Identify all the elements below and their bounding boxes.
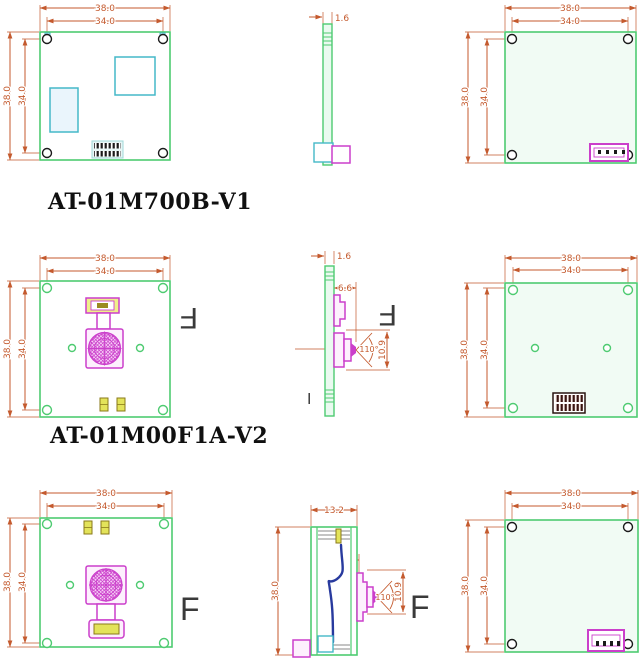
row2-back-view: 38.0 34.0 38.0 34.0 <box>460 254 637 417</box>
index-tick: I <box>307 390 311 408</box>
row3-back-view: 38.0 34.0 38.0 34.0 <box>461 489 638 652</box>
dim-board-height: 38.0 <box>461 87 471 107</box>
lens-glass-side <box>351 343 356 357</box>
dim-hole-span-v: 34.0 <box>18 572 28 592</box>
dim-fov-angle: 110° <box>359 345 378 354</box>
fpc-ribbon <box>97 604 115 620</box>
dim-hole-span: 34.0 <box>560 17 580 27</box>
dim-case-height: 38.0 <box>271 581 281 601</box>
connector-side-block <box>293 640 310 657</box>
dim-board-width: 38.0 <box>96 489 116 499</box>
mounting-hole <box>43 284 52 293</box>
mounting-hole <box>508 640 517 649</box>
dim-hole-span: 34.0 <box>95 267 115 277</box>
dim-case-width: 13.2 <box>324 506 344 516</box>
extension-lines <box>323 12 332 24</box>
dim-board-width: 38.0 <box>561 489 581 499</box>
mounting-hole <box>624 286 633 295</box>
output-connector-4pin <box>588 630 624 651</box>
mounting-hole <box>624 404 633 413</box>
lens-mount-hole <box>532 345 539 352</box>
mounting-hole <box>159 35 168 44</box>
dim-hole-span: 34.0 <box>561 502 581 512</box>
row2-side-view: 1.6 6.6 10.9 110° I F <box>295 251 397 416</box>
dim-board-width: 38.0 <box>561 254 581 264</box>
lens-mount-hole <box>137 345 144 352</box>
dim-hole-span-v: 34.0 <box>480 340 490 360</box>
lens-barrel-side <box>344 339 351 361</box>
dim-board-height: 38.0 <box>3 86 13 106</box>
lens-mount-hole <box>604 345 611 352</box>
mounting-hole <box>43 639 52 648</box>
dim-board-width: 38.0 <box>560 4 580 14</box>
mounting-hole <box>509 404 518 413</box>
dim-module-height: 10.9 <box>378 340 388 360</box>
model-label-2: AT-01M00F1A-V2 <box>49 423 268 449</box>
row3-side-view: 13.2 38.0 6.6 10.9 110° F <box>271 505 430 657</box>
mounting-hole <box>160 520 169 529</box>
output-connector-4pin <box>590 144 628 161</box>
dim-board-height: 38.0 <box>3 339 13 359</box>
orientation-marker-f: F <box>180 591 200 627</box>
orientation-marker-inverted-f: F <box>180 301 198 334</box>
dim-pcb-thickness: 1.6 <box>335 14 350 24</box>
dim-hole-span-v: 34.0 <box>480 576 490 596</box>
dim-fov-angle: 110° <box>375 593 394 602</box>
ic-chip-large <box>115 57 155 95</box>
dim-hole-span-v: 34.0 <box>18 339 28 359</box>
camera-bracket-side <box>357 573 367 621</box>
mounting-hole <box>159 406 168 415</box>
orientation-marker-inverted-f: F <box>379 298 397 331</box>
camera-module <box>86 566 126 638</box>
lens-mount-hole <box>137 582 144 589</box>
row2-front-view: 38.0 34.0 38.0 34.0 F <box>3 254 198 417</box>
camera-body-side <box>334 333 344 367</box>
dim-board-height: 38.0 <box>460 340 470 360</box>
row1-back-view: 38.0 34.0 38.0 34.0 <box>461 4 636 163</box>
model-label-1: AT-01M700B-V1 <box>47 189 252 215</box>
lens-mount-hole <box>69 345 76 352</box>
mounting-hole <box>508 151 517 160</box>
row3-front-view: 38.0 34.0 38.0 34.0 10.8 10.8 F <box>3 489 200 648</box>
fpc-ribbon <box>97 313 110 329</box>
mounting-hole <box>159 284 168 293</box>
mounting-hole <box>43 149 52 158</box>
mounting-hole <box>508 523 517 532</box>
internal-part <box>336 529 341 543</box>
dim-module-height: 10.9 <box>394 582 404 602</box>
mounting-hole <box>160 639 169 648</box>
mounting-hole <box>624 35 633 44</box>
mounting-hole <box>43 406 52 415</box>
board-connector-footprint <box>553 393 585 413</box>
mounting-hole <box>43 520 52 529</box>
fpc-contacts <box>97 303 108 308</box>
dim-hole-span: 34.0 <box>561 266 581 276</box>
dim-board-width: 38.0 <box>95 254 115 264</box>
mounting-hole <box>508 35 517 44</box>
mounting-hole <box>159 149 168 158</box>
mounting-hole <box>509 286 518 295</box>
camera-module <box>86 298 123 368</box>
board-connector-footprint <box>92 141 123 158</box>
dim-board-height: 38.0 <box>461 576 471 596</box>
dim-hole-span: 34.0 <box>95 17 115 27</box>
row1-front-view: 38.0 34.0 38.0 34.0 <box>3 4 170 160</box>
connector-side-block <box>332 146 350 163</box>
dim-pcb-thickness: 1.6 <box>337 252 352 262</box>
mounting-hole <box>43 35 52 44</box>
dim-hole-span: 34.0 <box>96 502 116 512</box>
dim-lens-height: 6.6 <box>338 284 353 294</box>
lens-mount-hole <box>67 582 74 589</box>
orientation-marker-f: F <box>410 589 430 625</box>
component-side-block <box>318 636 333 652</box>
dim-board-width: 38.0 <box>95 4 115 14</box>
fpc-connector-side <box>334 295 345 326</box>
ic-chip-small <box>50 88 78 132</box>
row1-side-view: 1.6 <box>309 12 350 165</box>
lens-barrel-side <box>367 587 373 607</box>
dim-hole-span-v: 34.0 <box>480 87 490 107</box>
dim-hole-span-v: 34.0 <box>18 86 28 106</box>
engineering-drawing-sheet: 38.0 34.0 38.0 34.0 AT-01M700B-V1 1.6 <box>0 0 640 662</box>
dim-board-height: 38.0 <box>3 572 13 592</box>
fpc-connector-slot <box>94 624 119 634</box>
mounting-hole <box>624 523 633 532</box>
component-side-block <box>314 143 333 162</box>
